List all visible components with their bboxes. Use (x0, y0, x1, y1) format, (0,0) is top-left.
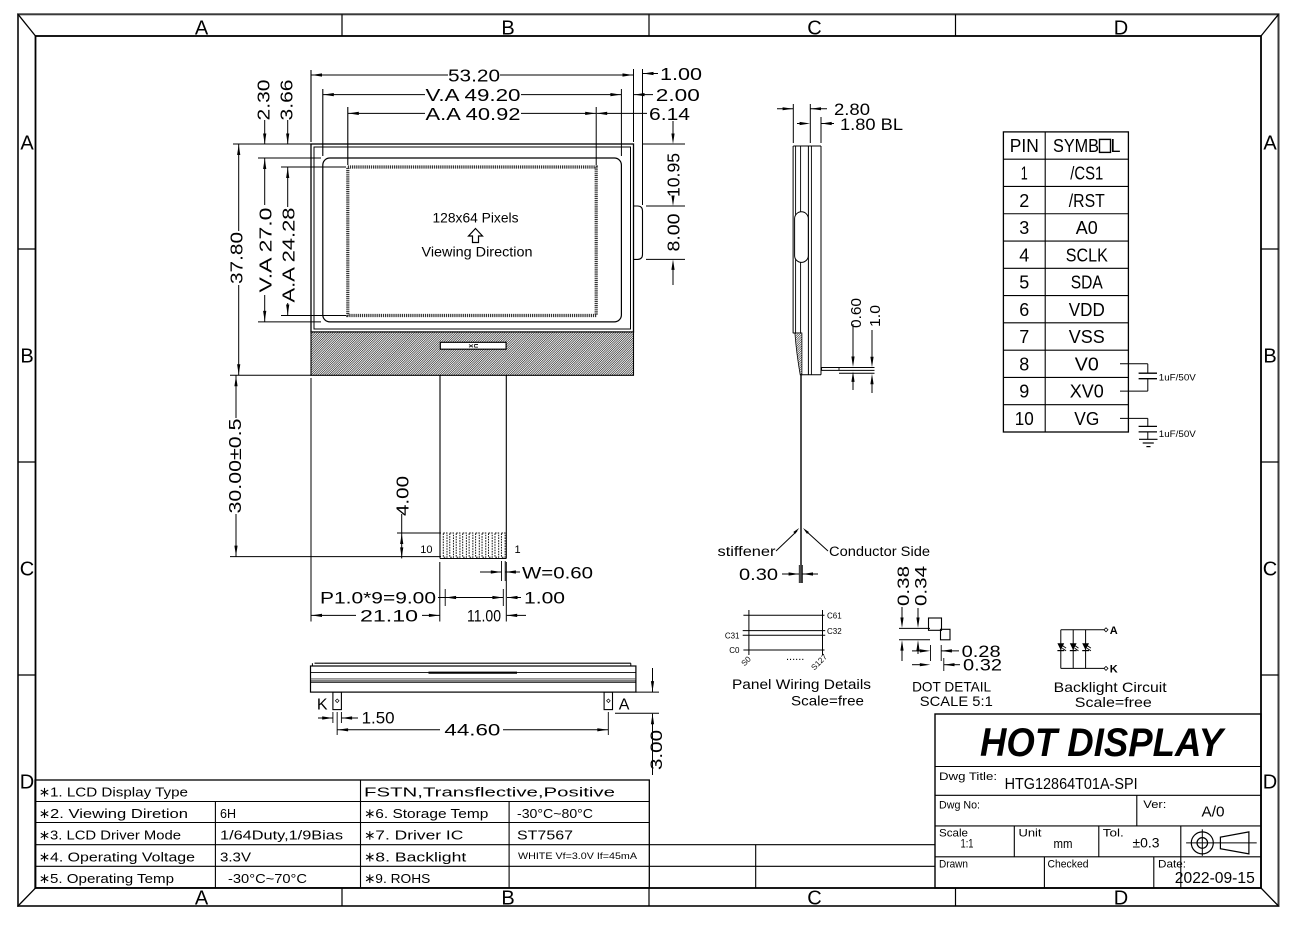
svg-text:C: C (20, 559, 34, 581)
svg-text:30.00±0.5: 30.00±0.5 (225, 419, 245, 514)
svg-text:2.00: 2.00 (656, 85, 700, 105)
svg-text:Checked: Checked (1048, 859, 1089, 871)
svg-text:9: 9 (1019, 382, 1029, 402)
svg-text:A: A (20, 133, 34, 155)
svg-text:1.50: 1.50 (362, 709, 395, 728)
svg-text:11.00: 11.00 (467, 607, 501, 626)
svg-text:21.10: 21.10 (360, 607, 418, 626)
svg-text:stiffener: stiffener (718, 544, 777, 559)
svg-text:C0: C0 (729, 646, 740, 655)
svg-text:8.00: 8.00 (664, 213, 684, 251)
svg-text:D: D (1114, 18, 1128, 40)
svg-text:44.60: 44.60 (444, 721, 500, 740)
svg-text:5: 5 (1019, 273, 1029, 293)
svg-text:1/64Duty,1/9Bias: 1/64Duty,1/9Bias (220, 828, 344, 843)
svg-text:C61: C61 (827, 612, 842, 621)
svg-text:A: A (195, 888, 209, 910)
svg-text:C32: C32 (827, 627, 842, 636)
svg-text:1: 1 (1021, 163, 1028, 183)
svg-text:SYMB: SYMB (1053, 136, 1099, 156)
svg-text:Scale=free: Scale=free (1075, 695, 1152, 710)
svg-text:FSTN,Transflective,Positive: FSTN,Transflective,Positive (364, 785, 615, 800)
svg-text:/RST: /RST (1069, 191, 1105, 211)
svg-text:SCLK: SCLK (1066, 245, 1108, 265)
svg-text:C31: C31 (725, 632, 740, 641)
svg-text:DOT DETAIL: DOT DETAIL (912, 679, 991, 694)
svg-text:K: K (317, 697, 328, 714)
svg-text:1. LCD Display Type: 1. LCD Display Type (50, 785, 188, 800)
svg-text:0.32: 0.32 (963, 656, 1002, 675)
svg-text:Backlight Circuit: Backlight Circuit (1054, 680, 1167, 695)
svg-text:A: A (619, 697, 630, 714)
svg-text:A: A (195, 18, 209, 40)
svg-text:D: D (1114, 888, 1128, 910)
svg-text:4. Operating Voltage: 4. Operating Voltage (50, 849, 195, 864)
svg-text:WHITE Vf=3.0V If=45mA: WHITE Vf=3.0V If=45mA (518, 851, 638, 862)
svg-text:VSS: VSS (1069, 327, 1105, 347)
svg-text:1: 1 (515, 544, 521, 556)
svg-text:3.00: 3.00 (647, 730, 666, 770)
svg-text:D: D (20, 772, 34, 794)
svg-text:VDD: VDD (1069, 300, 1105, 320)
svg-text:B: B (501, 888, 514, 910)
svg-text:A: A (1263, 133, 1277, 155)
svg-text:0.38: 0.38 (894, 566, 913, 606)
svg-text:D: D (1263, 772, 1277, 794)
svg-text:V.A 49.20: V.A 49.20 (426, 85, 521, 105)
svg-text:Tol.: Tol. (1103, 828, 1124, 840)
svg-text:Scale=free: Scale=free (791, 694, 864, 709)
svg-text:Unit: Unit (1019, 828, 1042, 840)
svg-text:2. Viewing Diretion: 2. Viewing Diretion (50, 806, 188, 821)
svg-text:A0: A0 (1076, 218, 1098, 238)
svg-text:Drawn: Drawn (939, 859, 968, 871)
svg-text:Dwg Title:: Dwg Title: (939, 771, 997, 783)
svg-text:SCALE 5:1: SCALE 5:1 (920, 694, 993, 709)
svg-text:8. Backlight: 8. Backlight (375, 849, 466, 864)
svg-text:37.80: 37.80 (227, 232, 247, 284)
svg-text:A.A 40.92: A.A 40.92 (426, 104, 521, 124)
svg-text:Ver:: Ver: (1143, 799, 1166, 811)
svg-text:6: 6 (1019, 300, 1029, 320)
svg-text:V0: V0 (1075, 354, 1099, 374)
svg-text:5. Operating Temp: 5. Operating Temp (50, 871, 174, 886)
svg-text:9. ROHS: 9. ROHS (375, 871, 430, 886)
svg-text:Panel Wiring Details: Panel Wiring Details (732, 677, 871, 692)
svg-text:L: L (1111, 136, 1121, 156)
svg-text:C: C (807, 888, 821, 910)
svg-text:2: 2 (1019, 191, 1029, 211)
svg-text:3.3V: 3.3V (220, 849, 251, 864)
svg-text:Dwg No:: Dwg No: (939, 800, 980, 812)
svg-text:B: B (1263, 346, 1276, 368)
svg-text:0.30: 0.30 (739, 565, 778, 584)
svg-text:7: 7 (1019, 327, 1029, 347)
svg-text:128x64 Pixels: 128x64 Pixels (433, 211, 519, 226)
svg-text:K: K (1110, 664, 1118, 676)
svg-text:XV0: XV0 (1070, 382, 1104, 402)
svg-text:4: 4 (1019, 245, 1029, 265)
svg-text:8: 8 (1019, 354, 1029, 374)
svg-text:/CS1: /CS1 (1070, 163, 1103, 183)
svg-text:mm: mm (1054, 836, 1073, 851)
svg-text:A: A (1110, 625, 1118, 637)
svg-text:6H: 6H (220, 806, 236, 821)
svg-text:Date:: Date: (1158, 859, 1186, 871)
svg-text:P1.0*9=9.00: P1.0*9=9.00 (320, 589, 436, 608)
svg-text:7. Driver IC: 7. Driver IC (375, 828, 464, 843)
svg-text:A/0: A/0 (1202, 803, 1225, 820)
svg-text:1.80 BL: 1.80 BL (840, 115, 903, 134)
svg-text:HOT DISPLAY: HOT DISPLAY (980, 721, 1226, 765)
svg-text:10.95: 10.95 (664, 153, 684, 197)
svg-text:53.20: 53.20 (448, 66, 500, 86)
svg-text:1.00: 1.00 (660, 64, 702, 84)
svg-text:C: C (1263, 559, 1277, 581)
svg-text:1.00: 1.00 (524, 589, 565, 608)
svg-text:A.A 24.28: A.A 24.28 (279, 208, 299, 303)
svg-text:2022-09-15: 2022-09-15 (1175, 870, 1255, 887)
svg-text:1.0: 1.0 (867, 305, 884, 327)
svg-text:6. Storage Temp: 6. Storage Temp (375, 806, 488, 821)
svg-text:10: 10 (420, 544, 432, 556)
svg-text:B: B (20, 346, 33, 368)
svg-text:1:1: 1:1 (961, 837, 974, 851)
svg-text:C: C (807, 18, 821, 40)
svg-text:Conductor Side: Conductor Side (829, 544, 930, 559)
svg-text:HTG12864T01A-SPI: HTG12864T01A-SPI (1005, 776, 1138, 793)
svg-text:ST7567: ST7567 (517, 828, 573, 843)
svg-text:4.00: 4.00 (393, 476, 413, 516)
svg-text:......: ...... (786, 651, 804, 663)
svg-text:VG: VG (1074, 409, 1099, 429)
svg-text:10: 10 (1015, 409, 1034, 429)
svg-text:±0.3: ±0.3 (1133, 835, 1160, 851)
svg-text:1uF/50V: 1uF/50V (1159, 372, 1197, 383)
svg-text:2.30: 2.30 (254, 79, 274, 120)
svg-text:Viewing Direction: Viewing Direction (422, 245, 533, 260)
svg-text:PIN: PIN (1010, 136, 1039, 156)
svg-text:3: 3 (1019, 218, 1029, 238)
svg-text:-30°C~80°C: -30°C~80°C (517, 806, 594, 821)
svg-text:V.A 27.0: V.A 27.0 (256, 207, 276, 292)
svg-text:3.66: 3.66 (277, 80, 297, 121)
svg-text:SDA: SDA (1071, 273, 1103, 293)
svg-text:3. LCD Driver Mode: 3. LCD Driver Mode (50, 828, 181, 843)
svg-text:-30°C~70°C: -30°C~70°C (228, 871, 308, 886)
svg-text:0.60: 0.60 (848, 298, 865, 328)
svg-text:0.34: 0.34 (912, 566, 931, 606)
svg-text:6.14: 6.14 (649, 104, 690, 124)
svg-text:W=0.60: W=0.60 (522, 564, 593, 583)
svg-text:1uF/50V: 1uF/50V (1159, 429, 1197, 440)
svg-text:B: B (501, 18, 514, 40)
